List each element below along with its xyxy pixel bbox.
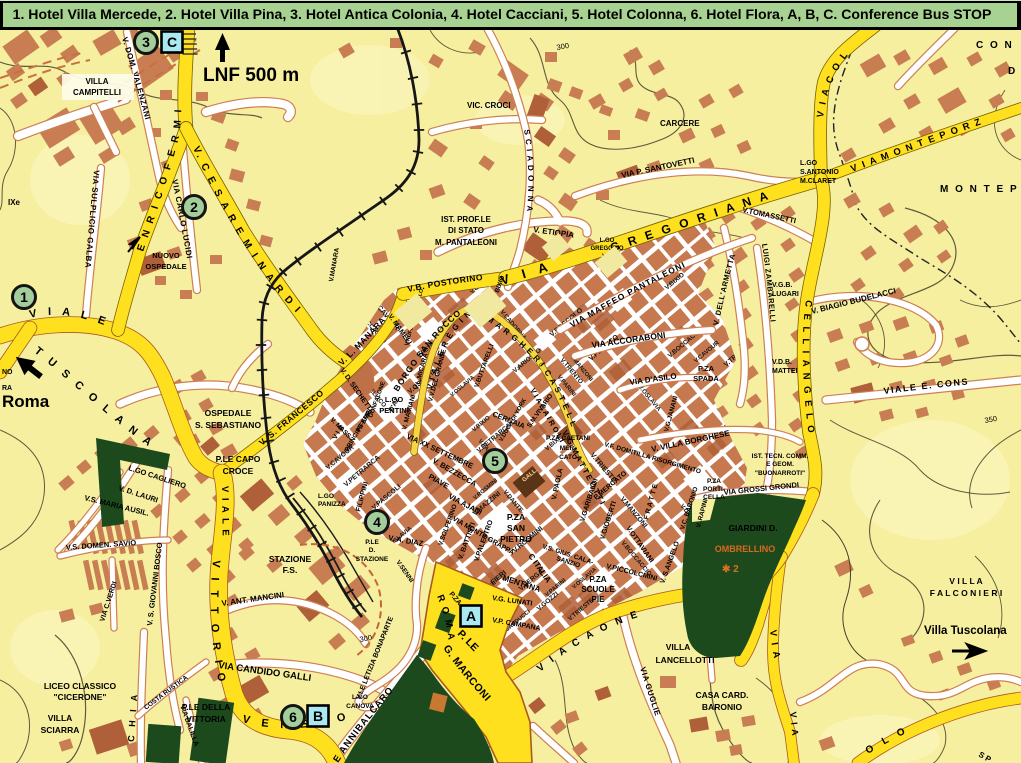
svg-text:2: 2 <box>190 199 198 215</box>
svg-text:"CICERONE": "CICERONE" <box>54 692 107 702</box>
svg-text:VILLA: VILLA <box>85 77 108 86</box>
svg-text:V.D.B.: V.D.B. <box>772 359 792 366</box>
svg-text:STAZIONE: STAZIONE <box>356 556 389 563</box>
svg-text:3: 3 <box>142 34 150 50</box>
svg-text:V.G.B.: V.G.B. <box>772 282 792 289</box>
svg-text:CANOVA: CANOVA <box>346 703 374 710</box>
svg-text:CARCERE: CARCERE <box>660 119 700 128</box>
svg-text:SPADA: SPADA <box>693 374 719 383</box>
svg-text:1: 1 <box>20 289 28 305</box>
svg-text:VIC. CROCI: VIC. CROCI <box>467 101 511 110</box>
svg-text:P.ZA: P.ZA <box>589 575 606 584</box>
svg-text:L.GO: L.GO <box>352 694 368 701</box>
svg-text:SCUOLE: SCUOLE <box>581 585 615 594</box>
svg-text:NO: NO <box>2 369 13 376</box>
svg-text:CROCE: CROCE <box>223 466 254 476</box>
svg-text:Villa Tuscolana: Villa Tuscolana <box>924 625 1007 637</box>
svg-text:OSPEDALE: OSPEDALE <box>205 408 252 418</box>
svg-text:1. Hotel Villa Mercede, 2. Hot: 1. Hotel Villa Mercede, 2. Hotel Villa P… <box>13 6 992 22</box>
svg-text:VILLA: VILLA <box>48 713 73 723</box>
svg-text:LICEO CLASSICO: LICEO CLASSICO <box>44 681 117 691</box>
svg-text:M.CLARET: M.CLARET <box>800 178 837 185</box>
svg-text:S. SEBASTIANO: S. SEBASTIANO <box>195 420 262 430</box>
svg-text:LANCELLOTTI: LANCELLOTTI <box>655 655 714 665</box>
svg-text:IST. TECN. COMM.: IST. TECN. COMM. <box>752 453 809 460</box>
svg-text:PIETRO: PIETRO <box>500 534 532 544</box>
svg-text:PIE: PIE <box>592 595 606 604</box>
svg-text:GIARDINI D.: GIARDINI D. <box>728 523 777 533</box>
svg-text:C O N: C O N <box>976 40 1014 51</box>
svg-text:OMBRELLINO: OMBRELLINO <box>715 544 776 554</box>
svg-text:S.ANTONIO: S.ANTONIO <box>800 169 839 176</box>
svg-text:F.S.: F.S. <box>283 565 298 575</box>
svg-text:P.ZA: P.ZA <box>698 364 715 373</box>
svg-text:MATTEI: MATTEI <box>772 368 798 375</box>
svg-text:VILLA: VILLA <box>666 642 691 652</box>
svg-text:OSPEDALE: OSPEDALE <box>145 262 186 271</box>
svg-text:P.LE DELLA: P.LE DELLA <box>182 702 231 712</box>
svg-text:4: 4 <box>373 514 381 530</box>
svg-text:RA: RA <box>2 385 12 392</box>
svg-text:"BUONARROTI": "BUONARROTI" <box>755 470 805 477</box>
svg-text:A: A <box>466 608 476 624</box>
svg-text:L.GO: L.GO <box>800 160 818 167</box>
svg-text:STAZIONE: STAZIONE <box>269 554 312 564</box>
svg-text:SAN: SAN <box>507 523 525 533</box>
svg-text:Roma: Roma <box>2 392 50 411</box>
svg-text:6: 6 <box>289 709 297 725</box>
svg-text:D: D <box>1008 66 1015 77</box>
svg-text:PORTI-: PORTI- <box>703 486 725 493</box>
svg-text:NUOVO: NUOVO <box>152 251 180 260</box>
svg-text:GREGORIO: GREGORIO <box>590 246 623 252</box>
svg-text:B: B <box>313 708 323 724</box>
svg-text:SCIARRA: SCIARRA <box>41 725 80 735</box>
svg-text:BARONIO: BARONIO <box>702 702 743 712</box>
svg-text:V I A L E: V I A L E <box>219 486 231 537</box>
svg-text:✱ 2: ✱ 2 <box>722 564 739 575</box>
svg-text:CAMPITELLI: CAMPITELLI <box>73 88 121 97</box>
svg-text:P.LE: P.LE <box>365 539 379 546</box>
svg-text:IXe: IXe <box>8 198 21 207</box>
svg-text:F A L C O N I E R I: F A L C O N I E R I <box>930 588 1002 598</box>
svg-text:V I L L A: V I L L A <box>949 576 982 586</box>
svg-text:E GEOM.: E GEOM. <box>766 461 794 468</box>
svg-text:PANIZZA: PANIZZA <box>318 501 346 508</box>
svg-text:P.LE CAPO: P.LE CAPO <box>216 454 261 464</box>
svg-text:DI STATO: DI STATO <box>448 226 484 235</box>
svg-text:P.ZA: P.ZA <box>507 512 525 522</box>
svg-text:C: C <box>167 34 177 50</box>
svg-text:M O N T E P: M O N T E P <box>940 184 1019 195</box>
svg-text:M. PANTALEONI: M. PANTALEONI <box>435 238 497 247</box>
svg-text:L.GO: L.GO <box>600 238 615 244</box>
svg-text:LUGARI: LUGARI <box>772 291 799 298</box>
svg-text:LNF 500 m: LNF 500 m <box>203 65 299 86</box>
svg-text:IST. PROF.LE: IST. PROF.LE <box>441 215 491 224</box>
svg-text:CASA CARD.: CASA CARD. <box>695 690 748 700</box>
svg-text:L.GO: L.GO <box>318 493 334 500</box>
svg-text:P.ZA: P.ZA <box>707 478 721 485</box>
svg-text:5: 5 <box>491 453 499 469</box>
svg-text:D.: D. <box>369 547 376 554</box>
